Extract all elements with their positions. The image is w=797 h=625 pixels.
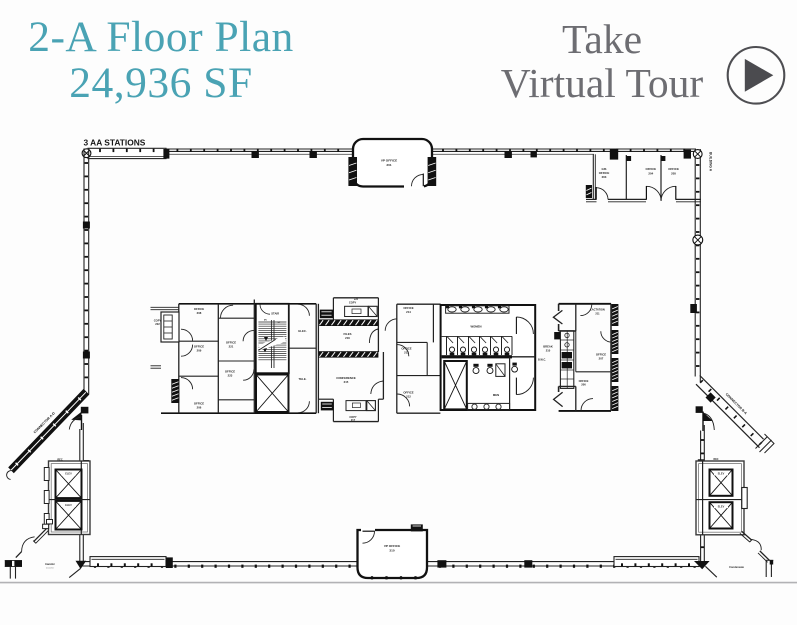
svg-text:301: 301 — [386, 163, 391, 167]
svg-text:REC: REC — [57, 459, 62, 462]
svg-text:204: 204 — [648, 172, 653, 176]
svg-text:TELE.: TELE. — [299, 377, 307, 381]
svg-text:208: 208 — [197, 311, 202, 315]
svg-text:ELEC.: ELEC. — [298, 329, 306, 333]
svg-text:221: 221 — [229, 345, 234, 349]
svg-text:216: 216 — [345, 336, 350, 340]
svg-text:OFFICE: OFFICE — [668, 167, 679, 171]
svg-text:206: 206 — [581, 383, 586, 387]
svg-text:VP OFFICE: VP OFFICE — [384, 544, 400, 548]
svg-text:REC: REC — [713, 458, 718, 461]
svg-text:211: 211 — [595, 311, 600, 315]
svg-text:217: 217 — [351, 418, 356, 422]
svg-text:206: 206 — [197, 406, 202, 410]
svg-text:transfer: transfer — [46, 567, 54, 570]
svg-text:215: 215 — [344, 380, 349, 384]
svg-text:BUILDING A: BUILDING A — [709, 152, 713, 172]
svg-text:210: 210 — [546, 348, 551, 352]
svg-text:Condensate: Condensate — [729, 565, 744, 569]
svg-text:205: 205 — [671, 172, 676, 176]
svg-text:transfer: transfer — [45, 562, 55, 566]
svg-text:3 AA STATIONS: 3 AA STATIONS — [84, 138, 146, 148]
svg-text:310: 310 — [389, 549, 394, 553]
svg-text:BREAK: BREAK — [543, 344, 553, 348]
svg-text:ELEV: ELEV — [718, 505, 725, 508]
svg-text:COPY: COPY — [349, 415, 357, 419]
svg-text:OFFICE: OFFICE — [579, 379, 589, 383]
svg-text:207: 207 — [599, 356, 604, 360]
svg-text:B.W.C.: B.W.C. — [538, 359, 546, 362]
svg-text:224: 224 — [354, 298, 359, 301]
svg-text:VP OFFICE: VP OFFICE — [381, 159, 397, 163]
svg-text:WOMEN: WOMEN — [470, 325, 481, 329]
svg-text:214: 214 — [406, 310, 411, 314]
svg-text:ELEV: ELEV — [718, 473, 725, 476]
svg-text:MEN: MEN — [493, 393, 499, 397]
svg-text:COPY: COPY — [154, 319, 162, 323]
svg-text:LACTATION: LACTATION — [590, 307, 605, 311]
svg-text:STAIR: STAIR — [271, 312, 279, 316]
svg-text:212: 212 — [406, 395, 411, 399]
svg-text:COPY: COPY — [349, 300, 357, 304]
svg-text:OFFICE: OFFICE — [645, 167, 656, 171]
svg-text:203: 203 — [602, 175, 607, 179]
svg-text:213: 213 — [404, 351, 409, 355]
svg-text:222: 222 — [155, 322, 160, 326]
svg-text:ELEV: ELEV — [65, 504, 72, 507]
svg-text:ELEV: ELEV — [65, 473, 72, 476]
svg-text:209: 209 — [197, 349, 202, 353]
svg-text:223: 223 — [228, 374, 233, 378]
